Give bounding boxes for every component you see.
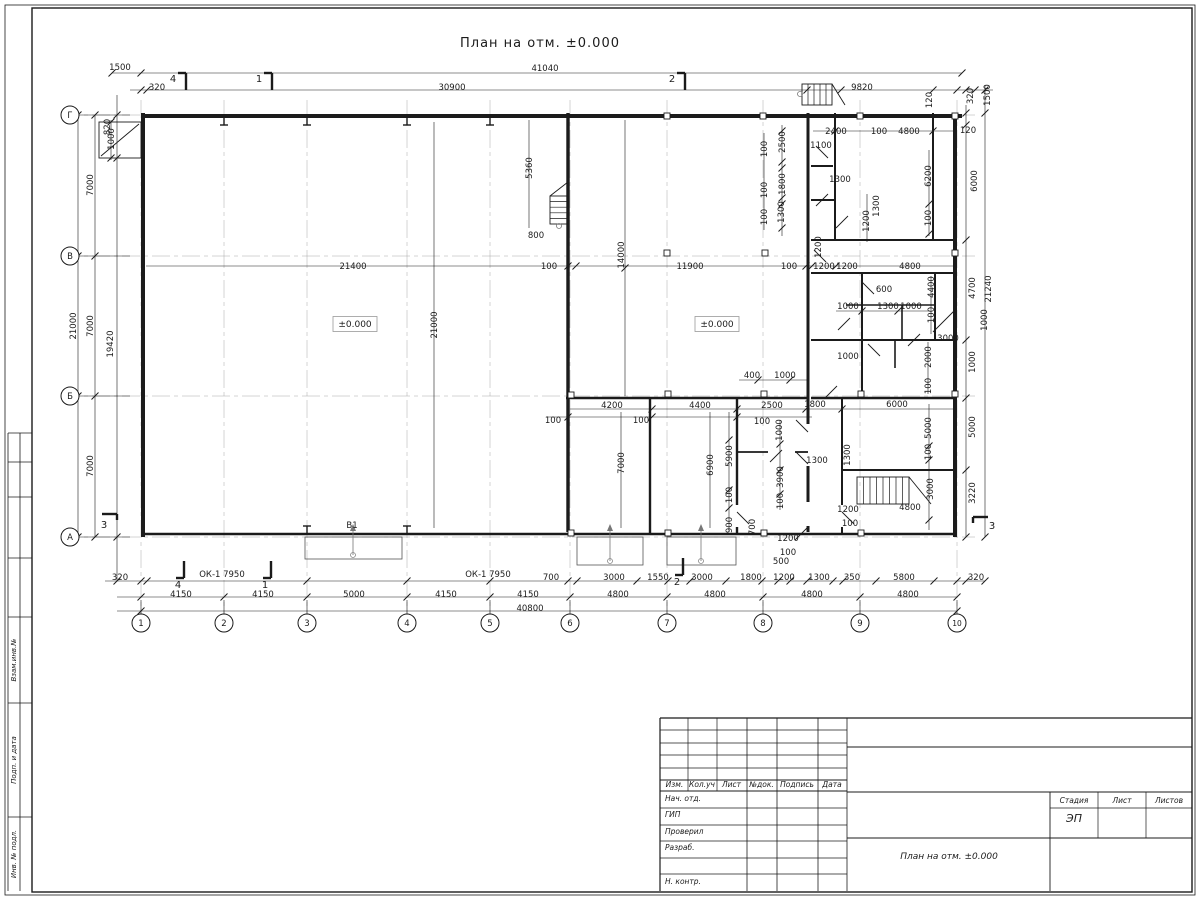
dimension-label: 100: [633, 416, 649, 426]
door-leaf-line: [796, 420, 808, 432]
dimension-label: 3900: [776, 466, 786, 488]
stamp-label-podp-data: Подп. и дата: [10, 736, 18, 784]
dimension-label: 600: [876, 285, 892, 295]
dimension-label: 6000: [886, 400, 908, 410]
dimension-label: 4800: [801, 590, 823, 600]
column-marker-square: [664, 113, 670, 119]
floor-plan-canvas: 41241233ГВБА1234567891015004104032030900…: [0, 0, 1200, 900]
axis-number-label: 3: [304, 619, 309, 629]
column-marker-square: [952, 250, 958, 256]
dimension-label: 1000: [900, 302, 922, 312]
dimension-label: 19420: [106, 330, 116, 357]
door-leaf-line: [836, 216, 848, 228]
entrance-porch: [667, 537, 736, 565]
column-marker-square: [665, 530, 671, 536]
dimension-label: 4150: [252, 590, 274, 600]
stamp-label-inv-podl: Инв. № подл.: [10, 830, 18, 878]
dimension-label: 1800: [778, 173, 788, 195]
dimension-label: 7000: [86, 174, 96, 196]
dimension-label: 1550: [647, 573, 669, 583]
section-mark-label: 3: [101, 520, 107, 531]
stamp-label-zam-inv: Взам.инв.№: [10, 638, 18, 681]
entrance-arrow-head: [698, 524, 704, 531]
level-mark-value: ±0.000: [700, 320, 734, 330]
entrance-porch: [305, 537, 402, 559]
dimension-label: 100: [541, 262, 557, 272]
dimension-label: 4800: [704, 590, 726, 600]
dimension-label: 100: [924, 444, 934, 460]
dimension-label: 120: [960, 126, 976, 136]
axis-letter-label: А: [67, 533, 73, 543]
dimension-label: 5000: [968, 416, 978, 438]
dimension-label: 3000: [603, 573, 625, 583]
dimension-label: 1300: [877, 302, 899, 312]
dimension-label: 1200: [813, 262, 835, 272]
dimension-label: 1300: [872, 195, 882, 217]
dimension-label: В1: [346, 521, 357, 531]
dimension-label: ОК-1 7950: [199, 570, 245, 580]
dimension-label: 1500: [983, 84, 993, 106]
drawing-title: План на отм. ±0.000: [430, 36, 650, 51]
dimension-label: 1300: [777, 201, 787, 223]
axis-number-label: 7: [664, 619, 669, 629]
sheet-inner-frame: [32, 8, 1192, 892]
column-marker-square: [568, 392, 574, 398]
door-leaf-line: [838, 318, 850, 330]
dimension-label: 100: [760, 182, 770, 198]
dimension-label: 4400: [927, 276, 937, 298]
tb-header-koluch: Кол.уч: [687, 780, 717, 789]
dimension-label: 100: [924, 210, 934, 226]
dimension-label: 1000: [968, 351, 978, 373]
dimension-label: 2000: [924, 346, 934, 368]
tb-doc-title: План на отм. ±0.000: [850, 852, 1048, 862]
dimension-label: 1000: [837, 302, 859, 312]
dimension-label: 100: [781, 262, 797, 272]
section-mark-label: 4: [170, 74, 176, 85]
stair-break-line: [550, 182, 568, 196]
column-marker-square: [568, 530, 574, 536]
dimension-label: 5800: [893, 573, 915, 583]
dimension-label: 7000: [86, 455, 96, 477]
tb-row-nach-otd: Нач. отд.: [665, 794, 745, 803]
dimension-label: 100: [780, 548, 796, 558]
section-mark-label: 1: [256, 74, 262, 85]
dimension-label: 400: [744, 371, 760, 381]
dimension-label: 1300: [808, 573, 830, 583]
dimension-label: 4800: [897, 590, 919, 600]
dimension-label: 1300: [829, 175, 851, 185]
dimension-label: 1200: [773, 573, 795, 583]
dimension-label: 500: [773, 557, 789, 567]
dimension-label: 21000: [69, 312, 79, 339]
dimension-label: 1100: [810, 141, 832, 151]
dimension-label: 700: [748, 519, 758, 535]
door-leaf-line: [862, 282, 874, 294]
dimension-label: 1200: [814, 236, 824, 258]
column-marker-square: [761, 530, 767, 536]
dimension-label: 30900: [438, 83, 465, 93]
section-mark-label: 2: [674, 577, 680, 588]
dimension-label: 2500: [778, 131, 788, 153]
column-marker-square: [858, 391, 864, 397]
axis-number-label: 8: [760, 619, 765, 629]
level-mark-value: ±0.000: [338, 320, 372, 330]
dimension-label: 100: [927, 307, 937, 323]
dimension-label: 900: [725, 517, 735, 533]
dimension-label: 4150: [517, 590, 539, 600]
dimension-label: 1000: [980, 309, 990, 331]
dimension-label: 100: [871, 127, 887, 137]
dimension-label: 40800: [516, 604, 543, 614]
tb-header-podpis: Подпись: [776, 780, 818, 789]
dimension-label: 1500: [109, 63, 131, 73]
column-marker-square: [762, 250, 768, 256]
dimension-label: 5000: [924, 417, 934, 439]
dimension-label: 21000: [430, 311, 440, 338]
dimension-label: 4200: [601, 401, 623, 411]
dimension-label: 3000: [937, 334, 959, 344]
dimension-label: 1000: [107, 128, 117, 150]
dimension-label: 21400: [339, 262, 366, 272]
dimension-label: 100: [725, 487, 735, 503]
dimension-label: 100: [754, 417, 770, 427]
axis-number-label: 1: [138, 619, 143, 629]
tb-header-ndok: №док.: [746, 780, 777, 789]
dimension-label: 1300: [843, 444, 853, 466]
tb-stage-value: ЭП: [1051, 812, 1097, 825]
column-marker-square: [761, 391, 767, 397]
section-mark-label: 2: [669, 74, 675, 85]
dimension-label: 7000: [86, 315, 96, 337]
column-marker-square: [952, 113, 958, 119]
dimension-label: 350: [844, 573, 860, 583]
dimension-label: 1300: [806, 456, 828, 466]
dimension-label: 100: [760, 209, 770, 225]
dimension-label: 11900: [676, 262, 703, 272]
dimension-label: 100: [842, 519, 858, 529]
column-marker-square: [858, 530, 864, 536]
axis-number-label: 10: [952, 619, 962, 628]
dimension-label: 5360: [525, 157, 535, 179]
dimension-label: 3000: [926, 478, 936, 500]
tb-stage-header: Стадия: [1051, 796, 1097, 805]
dimension-label: 1200: [837, 505, 859, 515]
column-marker-square: [665, 391, 671, 397]
dimension-label: 700: [543, 573, 559, 583]
dimension-label: 4150: [435, 590, 457, 600]
column-marker-square: [952, 391, 958, 397]
column-marker-square: [760, 113, 766, 119]
tb-row-proveril: Проверил: [665, 827, 745, 836]
dimension-label: 1000: [775, 419, 785, 441]
dimension-label: 100: [924, 378, 934, 394]
dimension-label: 1800: [804, 400, 826, 410]
dimension-label: 100: [760, 141, 770, 157]
dimension-label: 9820: [851, 83, 873, 93]
dimension-label: 120: [925, 92, 935, 108]
dimension-label: 6200: [924, 165, 934, 187]
stair-break-line: [832, 84, 845, 105]
stair-outline: [550, 196, 568, 224]
dimension-label: 100: [776, 493, 786, 509]
column-marker-square: [664, 250, 670, 256]
dimension-label: 4800: [607, 590, 629, 600]
dimension-label: 4800: [899, 503, 921, 513]
tb-header-list: Лист: [716, 780, 747, 789]
dimension-label: 2500: [761, 401, 783, 411]
tb-header-data: Дата: [817, 780, 847, 789]
sheet-outer-border: [5, 5, 1195, 895]
axis-letter-label: Г: [67, 111, 72, 121]
dimension-label: 320: [966, 88, 976, 104]
dimension-label: 1000: [837, 352, 859, 362]
dimension-label: 320: [149, 83, 165, 93]
dimension-label: 21240: [984, 275, 994, 302]
dimension-label: 2400: [825, 127, 847, 137]
axis-number-label: 5: [487, 619, 492, 629]
dimension-label: 41040: [531, 64, 558, 74]
axis-number-label: 4: [404, 619, 409, 629]
dimension-label: 5000: [343, 590, 365, 600]
column-marker-square: [857, 113, 863, 119]
tb-row-nkontr: Н. контр.: [665, 877, 745, 886]
dimension-label: 320: [968, 573, 984, 583]
dimension-label: 100: [545, 416, 561, 426]
drawing-sheet: 41241233ГВБА1234567891015004104032030900…: [0, 0, 1200, 900]
tb-row-razrab: Разраб.: [665, 843, 745, 852]
tb-sheets-header: Листов: [1147, 796, 1191, 805]
dimension-label: 14000: [617, 241, 627, 268]
axis-number-label: 9: [857, 619, 862, 629]
section-mark-label: 3: [989, 521, 995, 532]
dimension-label: 4700: [968, 277, 978, 299]
dimension-label: 1800: [740, 573, 762, 583]
dimension-label: 3000: [691, 573, 713, 583]
tb-row-gip: ГИП: [665, 810, 745, 819]
dimension-label: 4800: [899, 262, 921, 272]
dimension-label: 1200: [836, 262, 858, 272]
stair-outline: [802, 84, 832, 105]
dimension-label: 7000: [617, 452, 627, 474]
dimension-label: 800: [528, 231, 544, 241]
dimension-label: 1200: [777, 534, 799, 544]
entrance-arrow-head: [607, 524, 613, 531]
axis-letter-label: Б: [67, 392, 73, 402]
dimension-label: 5900: [725, 445, 735, 467]
dimension-label: 320: [112, 573, 128, 583]
dimension-label: 1200: [862, 210, 872, 232]
tb-sheet-header: Лист: [1099, 796, 1145, 805]
door-leaf-line: [868, 344, 880, 356]
axis-letter-label: В: [67, 252, 73, 262]
tb-header-izm: Изм.: [661, 780, 688, 789]
dimension-label: 1000: [774, 371, 796, 381]
dimension-label: 4150: [170, 590, 192, 600]
dimension-label: 6900: [706, 454, 716, 476]
dimension-label: 4400: [689, 401, 711, 411]
dimension-label: ОК-1 7950: [465, 570, 511, 580]
dimension-label: 4800: [898, 127, 920, 137]
axis-number-label: 6: [567, 619, 572, 629]
axis-number-label: 2: [221, 619, 226, 629]
dimension-label: 6000: [970, 170, 980, 192]
dimension-label: 3220: [968, 482, 978, 504]
